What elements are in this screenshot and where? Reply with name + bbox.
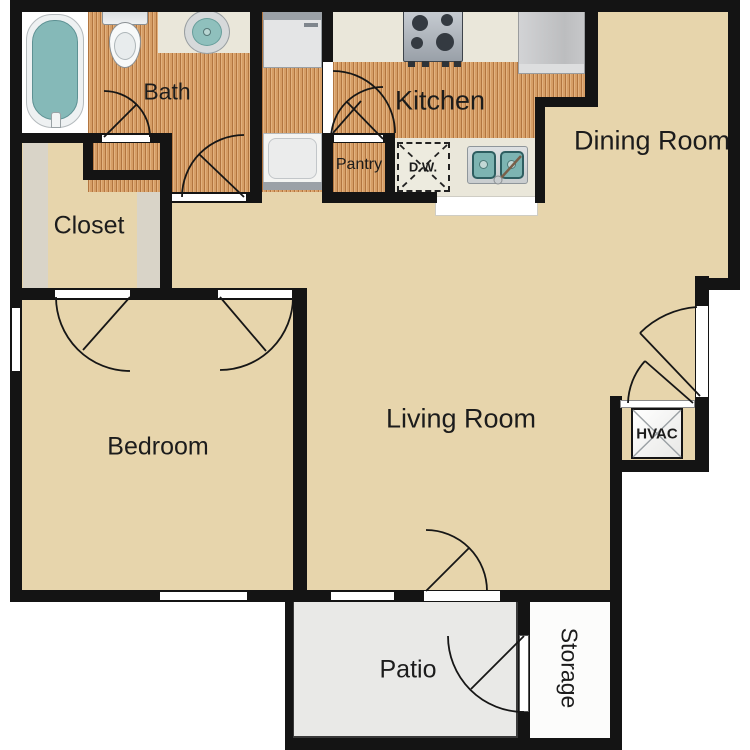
bath-door-leaf <box>199 154 244 197</box>
kitchen-faucet-base <box>494 176 502 184</box>
patio-label: Patio <box>380 656 437 685</box>
vestibule-door-leaf <box>104 104 137 137</box>
closet-label: Closet <box>54 212 125 241</box>
hvac-door-arc <box>628 361 645 403</box>
patio-door-leaf <box>426 548 469 591</box>
bedroom-door-arc <box>220 297 293 370</box>
closet-door-leaf <box>83 297 130 350</box>
bath-label: Bath <box>143 79 190 106</box>
hvac-label: HVAC <box>636 426 677 443</box>
pantry-label: Pantry <box>336 156 382 174</box>
kitchen-faucet-icon <box>501 156 521 178</box>
living-label: Living Room <box>386 404 536 435</box>
storage-door-swing-leaf <box>471 636 524 689</box>
pantry-door-leaf <box>347 102 383 139</box>
dishwasher-label: D.W. <box>409 160 437 175</box>
dining-label: Dining Room <box>574 126 730 157</box>
kitchen-label: Kitchen <box>395 86 485 117</box>
entry-door-arc <box>640 307 697 333</box>
storage-label: Storage <box>556 628 583 709</box>
laundry-door-leaf <box>333 101 361 133</box>
bedroom-door-leaf <box>220 297 266 351</box>
bedroom-label: Bedroom <box>107 433 208 462</box>
door-swing-overlay <box>0 0 750 750</box>
floor-plan: Bath Kitchen Dining Room Closet Pantry D… <box>0 0 750 750</box>
closet-door-arc <box>56 297 130 371</box>
